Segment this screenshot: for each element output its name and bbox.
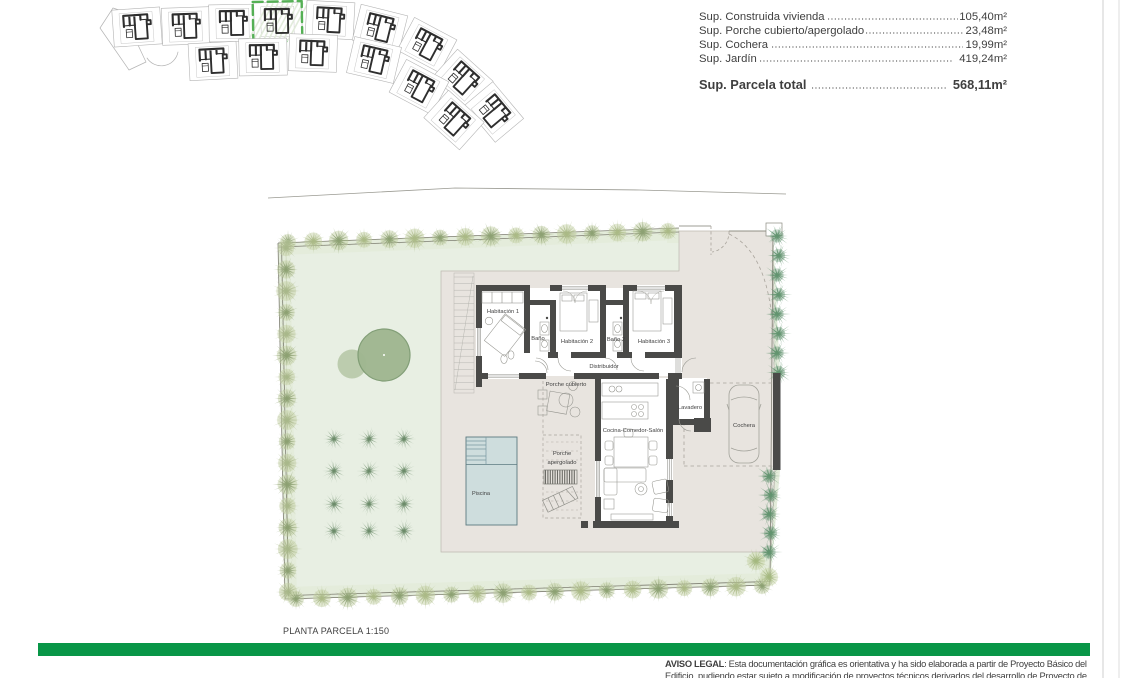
svg-text:Sup. Cochera: Sup. Cochera bbox=[699, 39, 769, 51]
svg-text:Sup. Parcela total: Sup. Parcela total bbox=[699, 77, 806, 92]
svg-text:Edificio, pudiendo estar sujet: Edificio, pudiendo estar sujeto a modifi… bbox=[665, 671, 1087, 678]
svg-text:Baño 2: Baño 2 bbox=[607, 337, 625, 343]
svg-text:Lavadero: Lavadero bbox=[678, 405, 702, 411]
svg-text:Porche cubierto: Porche cubierto bbox=[546, 382, 587, 388]
svg-text:Cocina-Comedor-Salón: Cocina-Comedor-Salón bbox=[603, 428, 664, 434]
svg-text:Baño: Baño bbox=[531, 336, 545, 342]
svg-text:Sup. Jardín: Sup. Jardín bbox=[699, 53, 757, 65]
svg-text:Sup. Construida vivienda: Sup. Construida vivienda bbox=[699, 11, 825, 23]
svg-text:568,11m²: 568,11m² bbox=[953, 77, 1007, 92]
svg-text:Porche: Porche bbox=[553, 451, 571, 457]
svg-text:Piscina: Piscina bbox=[472, 491, 491, 497]
svg-text:Habitación 3: Habitación 3 bbox=[638, 339, 670, 345]
svg-text:Habitación 2: Habitación 2 bbox=[561, 339, 593, 345]
svg-text:Sup. Porche cubierto/apergolad: Sup. Porche cubierto/apergolado bbox=[699, 25, 864, 37]
svg-text:Cochera: Cochera bbox=[733, 423, 756, 429]
svg-text:419,24m²: 419,24m² bbox=[959, 53, 1007, 65]
svg-text:Habitación 1: Habitación 1 bbox=[487, 309, 519, 315]
svg-text:Distribuidor: Distribuidor bbox=[589, 364, 618, 370]
svg-text:PLANTA PARCELA 1:150: PLANTA PARCELA 1:150 bbox=[283, 626, 389, 636]
svg-text:AVISO LEGAL: Esta documentació: AVISO LEGAL: Esta documentación gráfica … bbox=[665, 659, 1087, 669]
svg-text:105,40m²: 105,40m² bbox=[959, 11, 1007, 23]
svg-text:19,99m²: 19,99m² bbox=[966, 39, 1008, 51]
svg-text:apergolado: apergolado bbox=[547, 460, 576, 466]
svg-text:23,48m²: 23,48m² bbox=[966, 25, 1008, 37]
